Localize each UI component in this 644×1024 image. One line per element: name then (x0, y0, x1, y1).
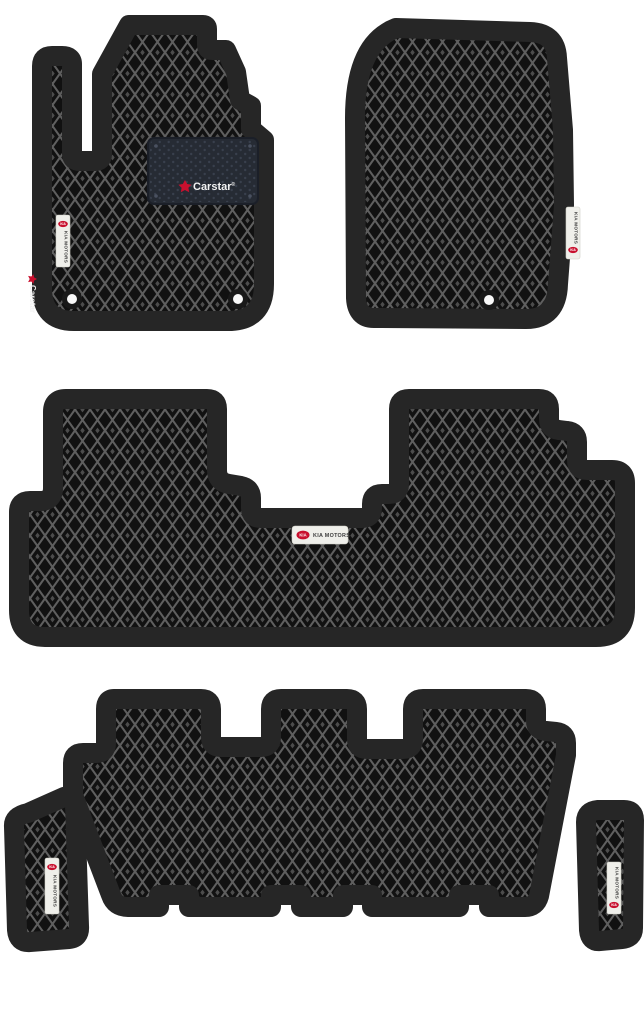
mats-illustration: Carstar® Carstar KIA KIA MOTORS KIA KIA … (0, 0, 644, 1024)
carstar-heel-text: Carstar (193, 181, 232, 193)
kia-tag-text: KIA MOTORS (53, 875, 58, 907)
kia-tag-text: KIA MOTORS (574, 212, 579, 244)
kia-logo-text: KIA (60, 222, 66, 226)
registered-mark: ® (232, 181, 236, 188)
kia-logo-text: KIA (570, 248, 576, 252)
fastener-hole (479, 290, 499, 310)
product-photo-car-mats: Carstar® Carstar KIA KIA MOTORS KIA KIA … (0, 0, 644, 1024)
kia-tag-driver: KIA KIA MOTORS (56, 215, 70, 267)
passenger-mat (355, 28, 564, 319)
kia-tag-right-side: KIA KIA MOTORS (607, 862, 621, 914)
kia-logo-text: KIA (49, 865, 55, 869)
carstar-side-text: Carstar (28, 285, 37, 313)
kia-logo-text: KIA (611, 903, 617, 907)
svg-text:Carstar®: Carstar® (193, 181, 236, 193)
kia-tag-left-side: KIA KIA MOTORS (45, 858, 59, 914)
fastener-hole (62, 289, 82, 309)
kia-tag-text: KIA MOTORS (64, 231, 69, 263)
fastener-hole (228, 289, 248, 309)
kia-tag-text: KIA MOTORS (313, 533, 350, 539)
pad-rivet (248, 194, 252, 198)
heel-pad: Carstar® (148, 138, 258, 204)
kia-logo-text: KIA (299, 533, 306, 538)
pad-rivet (154, 194, 158, 198)
kia-tag-passenger: KIA KIA MOTORS (566, 207, 580, 259)
third-row-mat (73, 699, 566, 907)
pad-rivet (154, 144, 158, 148)
second-row-mat (19, 399, 625, 637)
pad-rivet (248, 144, 252, 148)
kia-tag-text: KIA MOTORS (615, 867, 620, 899)
kia-tag-second-row: KIA KIA MOTORS (292, 526, 350, 544)
